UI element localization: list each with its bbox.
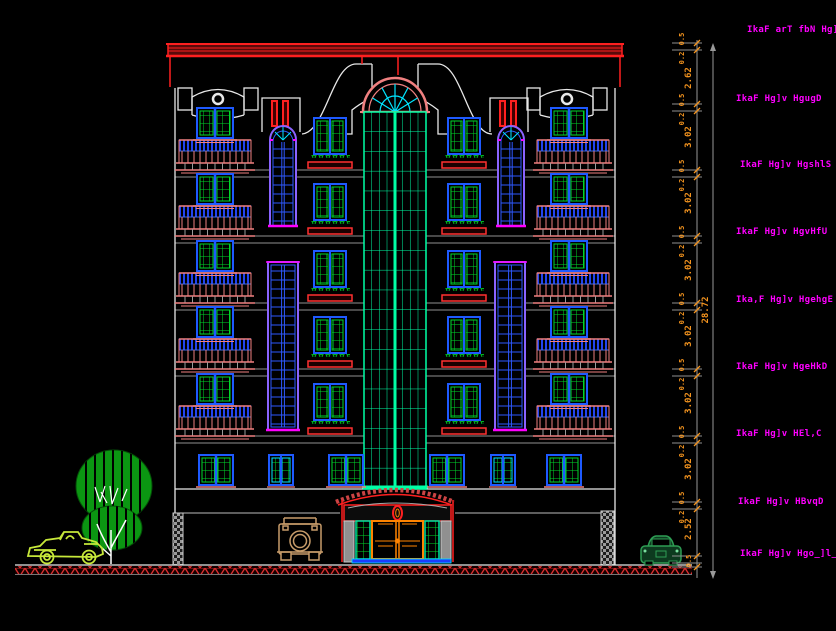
- window-flowerbox: [308, 251, 352, 301]
- stair-window-long-right: [493, 262, 527, 430]
- dim-value: 3.02: [684, 259, 694, 281]
- dim-value: 3.02: [684, 126, 694, 148]
- balcony: [175, 140, 255, 173]
- dim-sub: 0.2: [678, 445, 686, 458]
- floor-label: IkaF Hg]v HBvqD: [738, 497, 824, 507]
- dim-value: 3.02: [684, 458, 694, 480]
- window-flowerbox: [442, 251, 486, 301]
- dim-sub: 0.2: [678, 52, 686, 65]
- pilaster: [441, 521, 451, 562]
- floor-label: IkaF Hg]v Hgo_]l__m: [740, 549, 836, 559]
- curtain-wall: [362, 112, 428, 489]
- dim-value: 0.5: [685, 555, 693, 568]
- window: [193, 307, 237, 342]
- curtain-wall-mullion: [394, 112, 397, 489]
- window-flowerbox: [308, 317, 352, 367]
- window-flowerbox: [308, 118, 352, 168]
- parapet-circle-ornament: [213, 94, 223, 104]
- floor-label: IkaF Hg]v HEl,C: [736, 429, 822, 439]
- window-small: [489, 455, 517, 487]
- stair-window-arched-left: [268, 126, 298, 226]
- cad-canvas: 2.62 3.02 3.02 3.02 3.02 3.02 3.02 2.52 …: [0, 0, 836, 631]
- dim-sub: 0.5: [678, 492, 686, 505]
- dim-value: 2.62: [684, 67, 694, 89]
- dim-sub: 0.5: [678, 160, 686, 173]
- window: [547, 241, 591, 276]
- tree: [76, 450, 152, 564]
- window-flowerbox: [442, 184, 486, 234]
- dim-sub: 0.2: [678, 179, 686, 192]
- window: [547, 307, 591, 342]
- dimension-lines: 2.62 3.02 3.02 3.02 3.02 3.02 3.02 2.52 …: [672, 33, 716, 579]
- floor-label: IkaF Hg]v HgugD: [736, 94, 822, 104]
- window: [326, 455, 366, 487]
- window: [193, 241, 237, 276]
- floor-label: IkaF Hg]v HgeHkD: [736, 362, 828, 372]
- window-flowerbox: [308, 384, 352, 434]
- dim-overall-value: 28.72: [701, 296, 711, 323]
- entrance: [336, 490, 454, 563]
- dim-sub: 0.5: [678, 226, 686, 239]
- balcony: [175, 206, 255, 239]
- parapet-circle-ornament: [562, 94, 572, 104]
- dim-sub: 0.2: [678, 312, 686, 325]
- stair-window-long-left: [266, 262, 300, 430]
- dim-sub: 0.2: [678, 245, 686, 258]
- window: [547, 108, 591, 143]
- dim-sub: 0.5: [678, 94, 686, 107]
- balcony: [533, 273, 613, 306]
- window: [544, 455, 584, 487]
- dim-value: 3.02: [684, 392, 694, 414]
- entrance-side-glass: [425, 521, 439, 559]
- window-flowerbox: [308, 184, 352, 234]
- window: [193, 108, 237, 143]
- threshold: [352, 559, 451, 563]
- window: [193, 374, 237, 409]
- balcony: [533, 339, 613, 372]
- dim-value: 3.02: [684, 325, 694, 347]
- window: [196, 455, 236, 487]
- window-small: [267, 455, 295, 487]
- balcony: [175, 339, 255, 372]
- balcony: [533, 140, 613, 173]
- ground: [15, 565, 692, 575]
- window: [547, 374, 591, 409]
- floor-label: IkaF Hg]v HgshlS: [740, 160, 832, 170]
- ground-hatch: [15, 566, 692, 574]
- car-right: [641, 536, 681, 565]
- floor-label: IkaF Hg]v HgvHfU: [736, 227, 828, 237]
- jeep: [277, 518, 323, 560]
- window: [427, 455, 467, 487]
- dim-sub: 0.2: [678, 113, 686, 126]
- dim-sub: 0.5: [678, 359, 686, 372]
- stair-window-arched-right: [496, 126, 526, 226]
- balcony: [175, 273, 255, 306]
- dim-value: 3.02: [684, 192, 694, 214]
- balcony: [175, 406, 255, 439]
- dim-sub: 0.2: [678, 378, 686, 391]
- entrance-side-glass: [356, 521, 370, 559]
- window-flowerbox: [442, 384, 486, 434]
- window-flowerbox: [442, 317, 486, 367]
- dim-sub: 0.5: [678, 293, 686, 306]
- dim-sub: 0.5: [678, 426, 686, 439]
- window-flowerbox: [442, 118, 486, 168]
- balcony: [533, 206, 613, 239]
- balcony: [533, 406, 613, 439]
- floor-labels: IkaF arT fbN Hg]M[ IkaF Hg]v HgugD IkaF …: [736, 25, 836, 559]
- entrance-door: [372, 521, 423, 559]
- floor-label: Ika,F Hg]v HgehgE: [736, 295, 833, 305]
- pilaster: [344, 521, 354, 562]
- dim-sub: 0.2: [678, 511, 686, 524]
- fan-window: [360, 78, 430, 112]
- window: [193, 174, 237, 209]
- window: [547, 174, 591, 209]
- dim-sub: 0.5: [678, 33, 686, 46]
- floor-label: IkaF arT fbN Hg]M[: [747, 25, 836, 35]
